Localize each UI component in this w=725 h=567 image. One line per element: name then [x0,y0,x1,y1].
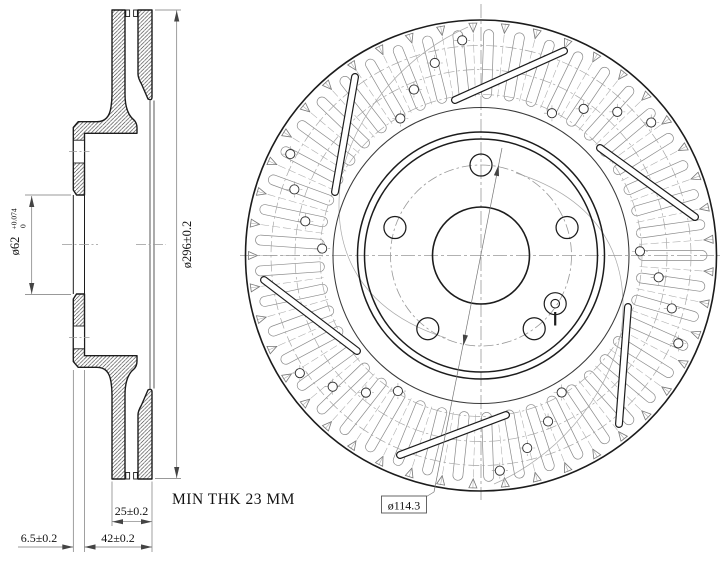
vane-slot-outline [503,409,525,479]
drawing-canvas: ø296±0.2 ø62 +0.074 0 25±0.2 42±0.2 6.5±… [0,0,725,567]
vane-slot-outline [525,403,556,472]
drill-hole [557,388,566,397]
drill-hole [543,417,552,426]
section-inboard-plate [138,389,152,479]
drill-hole [523,443,532,452]
vane-rim-tab [126,473,130,480]
drill-hole [674,339,683,348]
pattern-radial-line [498,414,506,488]
section-outboard-plate-and-hat [73,10,137,195]
section-lower-half [69,294,152,479]
dim-arrowhead [29,196,34,207]
machined-slot-inner [455,51,564,100]
vane-slot-outline [582,369,636,427]
vane-rim-tab [126,10,130,17]
pattern-radial-line [621,146,686,181]
drill-hole [667,304,676,313]
dim-arrowhead [29,283,34,294]
dim-arrowhead [141,544,152,549]
vane-slot-outline [636,272,706,292]
bolt-hole [384,217,406,239]
label-bolt-circle: ø114.3 [388,499,421,513]
drill-hole [396,114,405,123]
drill-hole [495,466,504,475]
drill-hole [458,36,467,45]
bolt-hole [523,318,545,340]
dim-arrowhead [85,544,96,549]
section-outboard-plate-and-hat [73,294,137,479]
drill-hole [430,58,439,67]
vane-slot-outline [255,235,325,250]
pattern-radial-line [640,267,714,272]
drill-hole [286,149,295,158]
cross-section-view [62,10,166,479]
section-inboard-plate [138,10,152,100]
pattern-radial-line [351,387,392,448]
pattern-radial-line [610,119,670,162]
set-screw-hole [544,293,566,315]
dim-line-bolt-circle [434,148,502,492]
drill-hole [295,369,304,378]
drill-hole [647,118,656,127]
dim-arrowhead [174,11,179,22]
dimension-labels: ø296±0.2 ø62 +0.074 0 25±0.2 42±0.2 6.5±… [8,208,427,545]
vane-slot-outline [259,204,329,228]
label-outer-diameter: ø296±0.2 [180,221,194,269]
vane-slot-outline [255,261,325,276]
vane-rim-tab [134,10,138,17]
section-upper-half [69,10,152,195]
dim-arrowhead [141,519,152,524]
drill-hole [328,382,337,391]
label-flange-thickness: 6.5±0.2 [21,531,58,545]
drill-hole [547,109,556,118]
label-min-thickness: MIN THK 23 MM [172,491,295,508]
drill-hole [613,107,622,116]
pattern-radial-line [351,62,392,123]
pattern-radial-line [441,26,454,99]
machined-slot-inner [400,415,506,455]
dim-arrowhead [174,467,179,478]
drill-hole [318,244,327,253]
pattern-radial-line [640,239,714,244]
pattern-radial-line [473,23,476,97]
pattern-radial-line [579,72,625,130]
label-bore-diameter: ø62 +0.074 0 [8,208,28,255]
vane-slot-outline [338,376,388,437]
label-bore-tol-lower: 0 [19,224,28,228]
pattern-radial-line [303,358,360,406]
vane-slot-outline [525,39,556,108]
machined-slot-inner [335,77,355,192]
set-screw-hole-inner [551,299,560,308]
drill-hole [654,273,663,282]
vane-slot-outline [636,219,706,239]
brake-disc-technical-drawing: ø296±0.2 ø62 +0.074 0 25±0.2 42±0.2 6.5±… [0,0,725,567]
vane-rim-tab [134,473,138,480]
drill-hole [301,217,310,226]
machined-slot-inner [600,148,695,217]
dim-arrowhead [62,544,73,549]
dim-arrowhead [112,519,123,524]
drill-hole [361,388,370,397]
drill-hole [290,185,299,194]
vane-slot-outline [582,84,636,142]
leader-line [427,492,435,497]
pattern-radial-line [268,161,336,191]
label-ring-thickness: 25±0.2 [115,504,149,518]
drill-hole [635,247,644,256]
vane-slot-outline [452,411,469,481]
dimension-lines [18,10,502,552]
label-overall-height: 42±0.2 [101,531,135,545]
label-bore-tol-upper: +0.074 [10,208,19,229]
label-bore-main: ø62 [8,237,22,256]
drill-hole [409,85,418,94]
pattern-radial-line [498,24,506,98]
drill-hole [579,104,588,113]
vane-slot-outline [295,344,357,393]
drill-hole [393,386,402,395]
